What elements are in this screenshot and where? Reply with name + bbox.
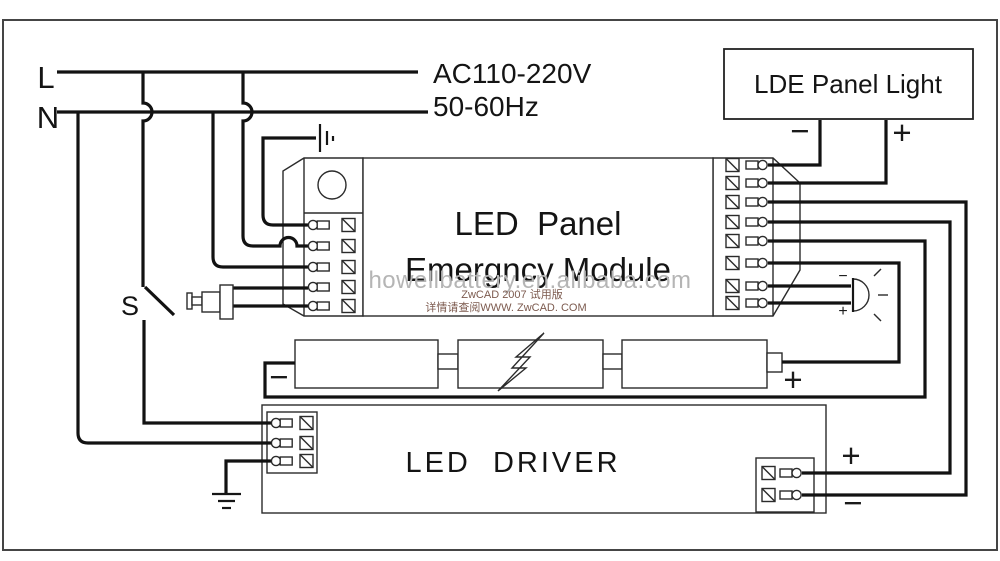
terminal-screw — [300, 437, 313, 450]
module-indicator-circle — [318, 171, 346, 199]
button-cap — [187, 293, 192, 309]
wiring-diagram: L N AC110-220V 50-60Hz S LDE Panel Light… — [0, 0, 1000, 561]
terminal-lug — [746, 298, 767, 307]
light-plus-mark: + — [892, 114, 911, 151]
battery-minus-mark: − — [269, 358, 288, 395]
terminal-screw — [342, 219, 355, 232]
test-button — [187, 285, 233, 319]
terminal-screw — [726, 280, 739, 293]
terminal-screw — [762, 489, 775, 502]
terminal-lug — [271, 418, 292, 427]
battery-cell-1 — [295, 340, 438, 388]
terminal-screw — [342, 300, 355, 313]
wire-live-to-switch — [143, 72, 152, 287]
frequency-label: 50-60Hz — [433, 91, 539, 122]
terminal-lug — [308, 282, 329, 291]
battery-pack — [295, 333, 782, 391]
terminal-screw — [300, 417, 313, 430]
terminal-lug — [780, 490, 801, 499]
earth-symbol-bottom — [212, 494, 241, 508]
battery-cell-3 — [622, 340, 767, 388]
diagram-canvas: L N AC110-220V 50-60Hz S LDE Panel Light… — [0, 0, 1000, 561]
terminal-screw — [342, 261, 355, 274]
button-neck — [202, 292, 220, 312]
terminal-lug — [308, 241, 329, 250]
panel-light-label: LDE Panel Light — [754, 69, 943, 99]
terminal-lug — [308, 262, 329, 271]
driver-input-terminals — [271, 417, 313, 468]
terminal-screw — [726, 257, 739, 270]
terminal-lug — [780, 468, 801, 477]
neutral-label: N — [37, 100, 59, 135]
terminal-screw — [726, 297, 739, 310]
terminal-screw — [726, 235, 739, 248]
driver-plus-mark: + — [841, 437, 860, 474]
button-shaft — [192, 297, 202, 305]
led-dome — [853, 279, 869, 311]
terminal-lug — [746, 197, 767, 206]
terminal-screw — [342, 281, 355, 294]
led-rays-icon — [874, 269, 888, 321]
battery-plus-mark: + — [783, 361, 802, 398]
light-minus-mark: − — [790, 112, 809, 149]
battery-link-2 — [603, 354, 622, 369]
terminal-lug — [746, 258, 767, 267]
module-title-line1: LED Panel — [455, 205, 622, 242]
terminal-lug — [746, 178, 767, 187]
terminal-screw — [342, 240, 355, 253]
terminal-screw — [762, 467, 775, 480]
voltage-label: AC110-220V — [433, 58, 592, 89]
wire-switch-to-driver — [144, 320, 271, 423]
live-label: L — [37, 60, 54, 95]
switch-blade — [145, 287, 174, 315]
led-plus-mark: + — [838, 303, 847, 320]
cad-stamp-line1: ZwCAD 2007 试用版 — [461, 287, 562, 301]
terminal-screw — [300, 455, 313, 468]
terminal-screw — [726, 216, 739, 229]
terminal-lug — [746, 281, 767, 290]
terminal-screw — [726, 196, 739, 209]
driver-minus-mark: − — [843, 484, 862, 521]
terminal-lug — [746, 236, 767, 245]
terminal-lug — [271, 456, 292, 465]
terminal-lug — [308, 301, 329, 310]
terminal-lug — [271, 438, 292, 447]
terminal-screw — [726, 177, 739, 190]
terminal-lug — [746, 217, 767, 226]
terminal-lug — [746, 160, 767, 169]
earth-symbol-top — [320, 124, 333, 152]
terminal-screw — [726, 159, 739, 172]
battery-link-1 — [438, 354, 458, 369]
led-minus-mark: − — [838, 268, 847, 285]
button-body — [220, 285, 233, 319]
battery-positive-cap — [767, 353, 782, 372]
terminal-lug — [308, 220, 329, 229]
led-indicator — [853, 269, 888, 321]
switch-label: S — [121, 291, 139, 321]
driver-label: LED DRIVER — [405, 447, 620, 479]
cad-stamp-line2: 详情请查阅WWW. ZwCAD. COM — [425, 300, 586, 314]
